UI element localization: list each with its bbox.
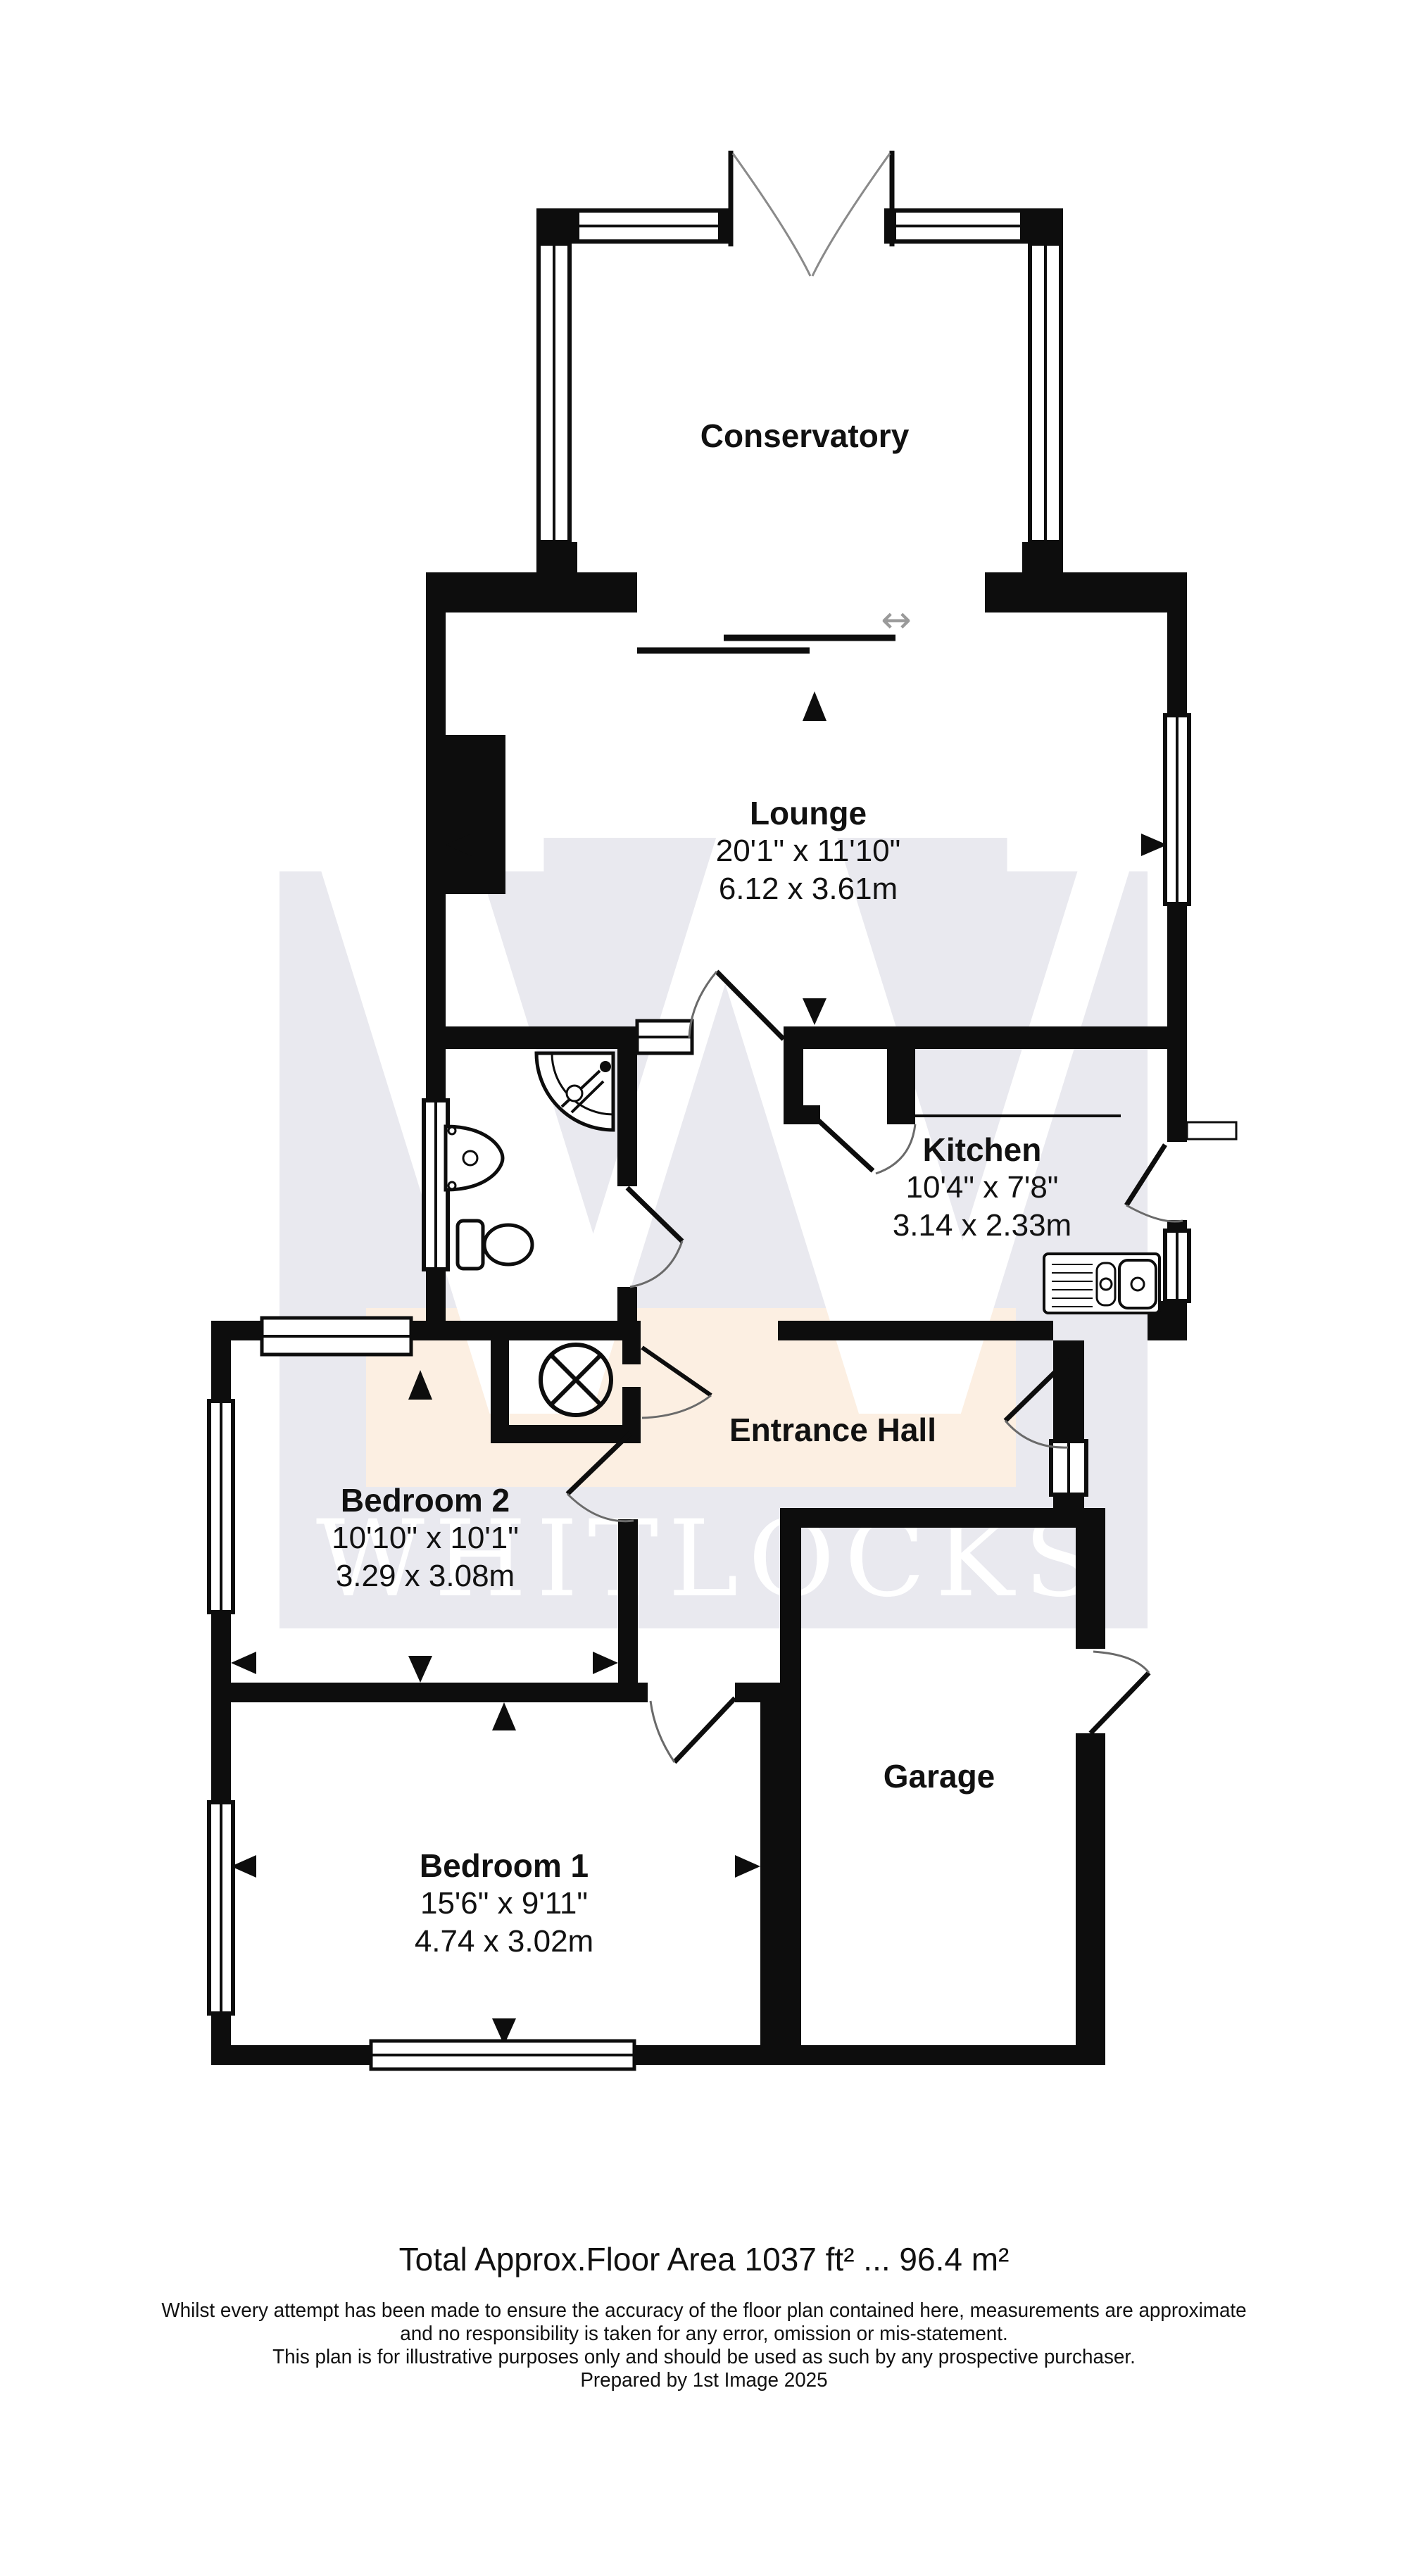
garage-side-door [1090, 1652, 1149, 1733]
disclaimer-line-4: Prepared by 1st Image 2025 [130, 2369, 1278, 2392]
room-name: Bedroom 1 [293, 1847, 715, 1885]
room-name: Entrance Hall [622, 1411, 1044, 1449]
room-dims-metric: 3.29 x 3.08m [214, 1557, 636, 1595]
toilet-icon [458, 1221, 532, 1269]
lounge-door [689, 972, 784, 1039]
outside-step [1187, 1122, 1236, 1139]
room-dims-metric: 6.12 x 3.61m [597, 870, 1019, 908]
conservatory-walls [536, 208, 1063, 577]
room-label-lounge: Lounge 20'1" x 11'10" 6.12 x 3.61m [597, 794, 1019, 908]
room-name: Bedroom 2 [214, 1481, 636, 1519]
room-dims-imperial: 15'6" x 9'11" [293, 1885, 715, 1923]
bottom-wall [211, 2041, 1105, 2069]
room-label-bedroom2: Bedroom 2 10'10" x 10'1" 3.29 x 3.08m [214, 1481, 636, 1595]
bedroom1-door [650, 1698, 735, 1762]
disclaimer-line-3: This plan is for illustrative purposes o… [130, 2346, 1278, 2369]
room-label-bedroom1: Bedroom 1 15'6" x 9'11" 4.74 x 3.02m [293, 1847, 715, 1961]
room-dims-imperial: 10'10" x 10'1" [214, 1519, 636, 1557]
room-name: Lounge [597, 794, 1019, 832]
sliding-door-arrow-icon: ↔ [881, 599, 912, 641]
room-dims-metric: 4.74 x 3.02m [293, 1923, 715, 1961]
disclaimer-line-2: and no responsibility is taken for any e… [130, 2323, 1278, 2346]
conservatory-french-doors [731, 151, 892, 276]
shower-icon [536, 1053, 613, 1130]
floorplan-page: W WHITLOCKS [0, 0, 1408, 2576]
basin-icon [446, 1126, 503, 1190]
inner-hall-walls [784, 1049, 915, 1124]
room-dims-imperial: 20'1" x 11'10" [597, 832, 1019, 870]
water-cylinder-icon [541, 1345, 611, 1415]
room-name: Kitchen [771, 1131, 1193, 1169]
room-label-kitchen: Kitchen 10'4" x 7'8" 3.14 x 2.33m [771, 1131, 1193, 1245]
room-label-garage: Garage [728, 1757, 1150, 1795]
shower-room-door [627, 1188, 682, 1287]
room-dims-imperial: 10'4" x 7'8" [771, 1169, 1193, 1207]
total-floor-area: Total Approx.Floor Area 1037 ft² ... 96.… [176, 2240, 1232, 2278]
disclaimer-line-1: Whilst every attempt has been made to en… [130, 2299, 1278, 2323]
room-dims-metric: 3.14 x 2.33m [771, 1207, 1193, 1245]
room-label-conservatory: Conservatory [593, 417, 1016, 455]
patio-sliding-door [637, 638, 895, 651]
floorplan-drawing: ↔ [0, 0, 1408, 2576]
lounge-bottom-wall [426, 1021, 1187, 1053]
room-name: Conservatory [593, 417, 1016, 455]
bedroom-divider-wall [211, 1683, 780, 1730]
room-label-entrance-hall: Entrance Hall [622, 1411, 1044, 1449]
kitchen-sink-icon [1044, 1254, 1159, 1313]
room-name: Garage [728, 1757, 1150, 1795]
cupboard-door [642, 1347, 711, 1418]
